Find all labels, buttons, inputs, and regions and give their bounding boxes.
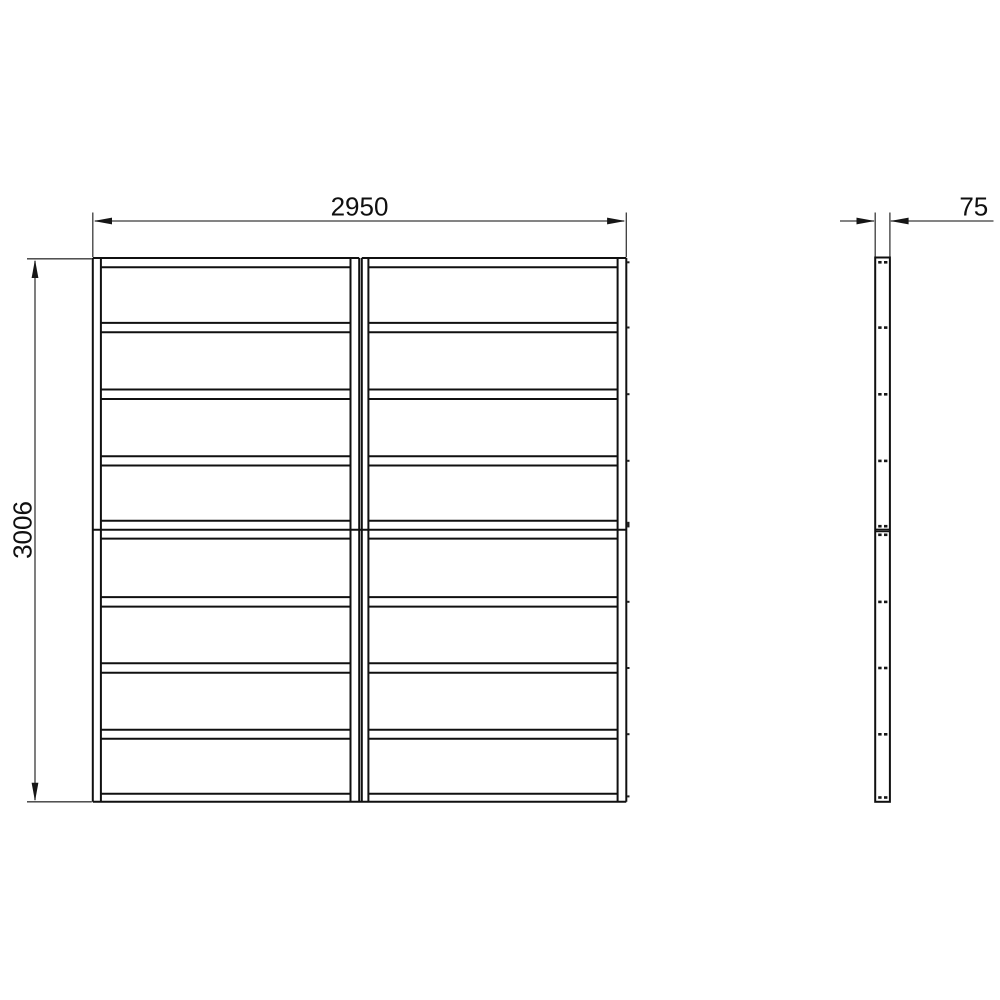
svg-text:2950: 2950 xyxy=(331,192,389,222)
svg-text:75: 75 xyxy=(959,192,988,222)
svg-text:3006: 3006 xyxy=(8,501,38,559)
